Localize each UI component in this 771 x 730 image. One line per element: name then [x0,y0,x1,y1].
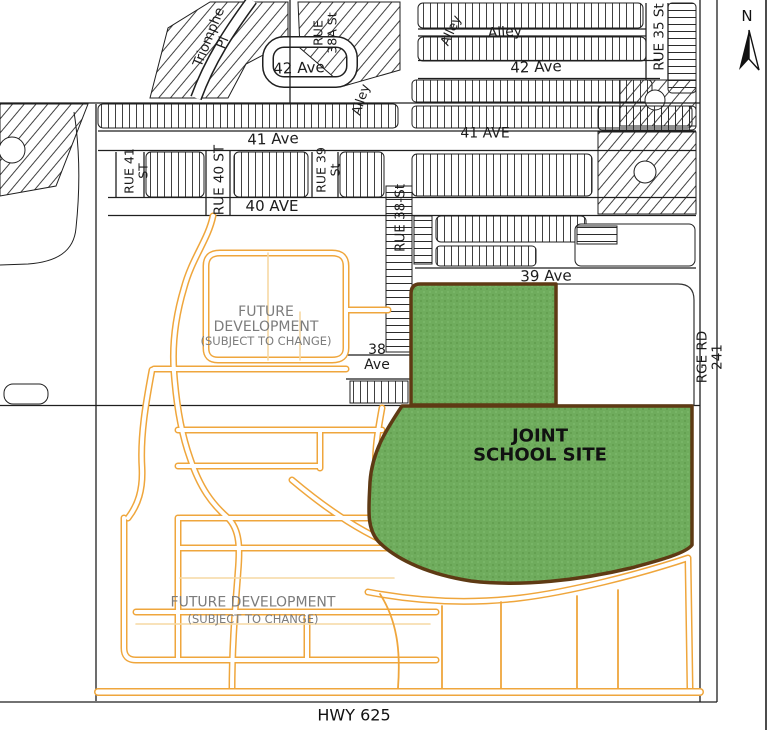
subdivision-map: Triomphe PlRUE 38A St42 AveAlleyAlleyAll… [0,0,771,730]
vacant-parcel [556,284,694,405]
school-site-north-parcel [411,284,556,405]
school-site-south-parcel [369,406,692,583]
map-canvas [0,0,771,730]
